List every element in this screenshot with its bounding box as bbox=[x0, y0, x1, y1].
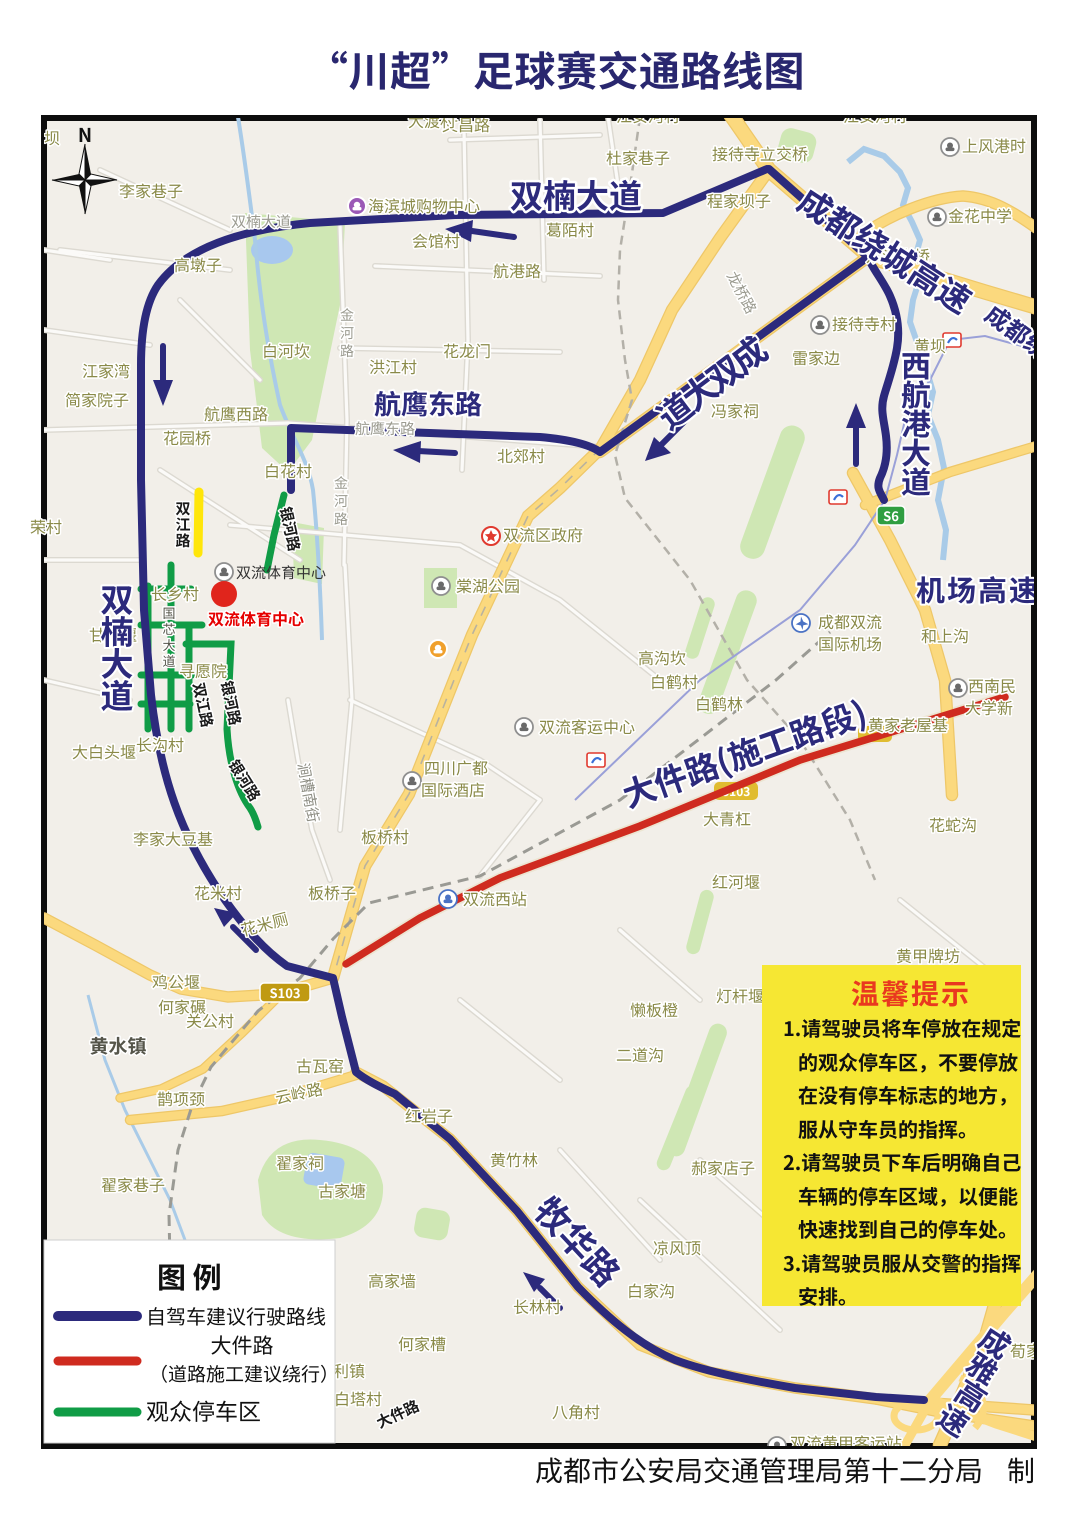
svg-text:在没有停车标志的地方，: 在没有停车标志的地方， bbox=[798, 1080, 1018, 1109]
svg-text:花蛇沟: 花蛇沟 bbox=[929, 812, 977, 836]
svg-text:观众停车区: 观众停车区 bbox=[146, 1393, 261, 1427]
svg-text:温馨提示: 温馨提示 bbox=[851, 973, 971, 1013]
svg-text:白家沟: 白家沟 bbox=[627, 1278, 675, 1302]
svg-text:洪江村: 洪江村 bbox=[369, 354, 417, 378]
svg-text:黄甲牌坊: 黄甲牌坊 bbox=[896, 943, 960, 967]
svg-text:航港路: 航港路 bbox=[493, 258, 541, 282]
svg-text:关公村: 关公村 bbox=[186, 1008, 234, 1032]
svg-text:航鹰东路: 航鹰东路 bbox=[374, 383, 482, 422]
svg-text:（道路施工建议绕行）: （道路施工建议绕行） bbox=[149, 1360, 339, 1387]
svg-text:双流客运中心: 双流客运中心 bbox=[539, 714, 635, 738]
svg-text:“川超”足球赛交通路线图: “川超”足球赛交通路线图 bbox=[307, 38, 805, 98]
svg-text:路: 路 bbox=[340, 341, 354, 361]
svg-text:简家院子: 简家院子 bbox=[65, 387, 129, 411]
svg-text:古家塘: 古家塘 bbox=[318, 1178, 366, 1202]
svg-text:道: 道 bbox=[901, 458, 931, 502]
svg-text:大白头堰: 大白头堰 bbox=[72, 739, 136, 763]
svg-text:寻愿院: 寻愿院 bbox=[179, 658, 227, 682]
svg-text:快速找到自己的停车处。: 快速找到自己的停车处。 bbox=[798, 1214, 1018, 1243]
svg-text:路: 路 bbox=[334, 509, 348, 529]
svg-text:何家槽: 何家槽 bbox=[398, 1331, 446, 1355]
svg-text:大学新: 大学新 bbox=[965, 695, 1013, 719]
svg-text:国际酒店: 国际酒店 bbox=[421, 777, 485, 801]
svg-text:白河坎: 白河坎 bbox=[262, 338, 310, 362]
svg-text:金: 金 bbox=[340, 305, 354, 325]
svg-text:大件路: 大件路 bbox=[211, 1330, 274, 1360]
svg-text:接待寺村: 接待寺村 bbox=[832, 311, 896, 335]
svg-text:双流体育中心: 双流体育中心 bbox=[208, 606, 304, 630]
svg-text:古瓦窑: 古瓦窑 bbox=[296, 1053, 344, 1077]
svg-text:灯杆堰: 灯杆堰 bbox=[716, 983, 764, 1007]
svg-text:雷家边: 雷家边 bbox=[792, 345, 840, 369]
svg-text:荣村: 荣村 bbox=[30, 514, 62, 538]
svg-text:高家墙: 高家墙 bbox=[368, 1268, 416, 1292]
svg-text:懒板橙: 懒板橙 bbox=[630, 997, 678, 1021]
svg-text:双楠大道: 双楠大道 bbox=[231, 211, 291, 232]
svg-text:航鹰西路: 航鹰西路 bbox=[204, 401, 268, 425]
svg-text:花龙门: 花龙门 bbox=[443, 338, 491, 362]
svg-text:制: 制 bbox=[1007, 1450, 1035, 1490]
svg-text:长乡村: 长乡村 bbox=[151, 581, 199, 605]
svg-text:二道沟: 二道沟 bbox=[616, 1042, 664, 1066]
svg-text:郝家店子: 郝家店子 bbox=[691, 1155, 755, 1179]
svg-text:白鹤林: 白鹤林 bbox=[695, 691, 743, 715]
svg-text:1.请驾驶员将车停放在规定: 1.请驾驶员将车停放在规定 bbox=[783, 1013, 1021, 1042]
svg-text:国际机场: 国际机场 bbox=[818, 631, 882, 655]
svg-text:双流体育中心: 双流体育中心 bbox=[236, 562, 326, 583]
svg-text:河: 河 bbox=[340, 323, 354, 343]
svg-text:金花中学: 金花中学 bbox=[948, 203, 1012, 227]
svg-text:N: N bbox=[78, 121, 92, 148]
svg-text:八角村: 八角村 bbox=[552, 1399, 600, 1423]
svg-text:3.请驾驶员服从交警的指挥: 3.请驾驶员服从交警的指挥 bbox=[783, 1248, 1021, 1277]
svg-text:白塔村: 白塔村 bbox=[334, 1386, 382, 1410]
svg-text:葛陌村: 葛陌村 bbox=[546, 217, 594, 241]
svg-text:北郊村: 北郊村 bbox=[497, 443, 545, 467]
svg-text:板桥村: 板桥村 bbox=[361, 824, 409, 848]
svg-text:长沟村: 长沟村 bbox=[136, 732, 184, 756]
svg-text:黄竹林: 黄竹林 bbox=[490, 1147, 538, 1171]
svg-text:棠湖公园: 棠湖公园 bbox=[456, 573, 520, 597]
svg-text:接待寺立交桥: 接待寺立交桥 bbox=[712, 141, 808, 165]
svg-text:双楠大道: 双楠大道 bbox=[510, 170, 642, 218]
svg-text:路: 路 bbox=[175, 530, 190, 551]
svg-text:安排。: 安排。 bbox=[798, 1281, 858, 1310]
svg-text:杜家巷子: 杜家巷子 bbox=[606, 145, 670, 169]
svg-text:自驾车建议行驶路线: 自驾车建议行驶路线 bbox=[146, 1301, 326, 1330]
svg-text:双流区政府: 双流区政府 bbox=[503, 522, 583, 546]
svg-text:的观众停车区，不要停放: 的观众停车区，不要停放 bbox=[798, 1047, 1018, 1076]
svg-text:道: 道 bbox=[101, 670, 134, 718]
svg-text:河: 河 bbox=[334, 491, 348, 511]
svg-text:花米村: 花米村 bbox=[194, 880, 242, 904]
svg-text:西南民: 西南民 bbox=[968, 673, 1016, 697]
svg-text:2.请驾驶员下车后明确自己: 2.请驾驶员下车后明确自己 bbox=[783, 1147, 1021, 1176]
svg-text:上风港时: 上风港时 bbox=[962, 133, 1026, 157]
svg-text:图 例: 图 例 bbox=[157, 1255, 222, 1297]
svg-text:翟家巷子: 翟家巷子 bbox=[101, 1172, 165, 1196]
svg-text:服从守车员的指挥。: 服从守车员的指挥。 bbox=[798, 1114, 978, 1143]
svg-text:红河堰: 红河堰 bbox=[712, 869, 760, 893]
svg-text:成都双流: 成都双流 bbox=[818, 609, 882, 633]
svg-text:江家湾: 江家湾 bbox=[82, 358, 130, 382]
svg-text:会馆村: 会馆村 bbox=[412, 228, 460, 252]
svg-text:鸡公堰: 鸡公堰 bbox=[152, 969, 200, 993]
svg-text:海滨城购物中心: 海滨城购物中心 bbox=[368, 193, 480, 217]
svg-text:长林村: 长林村 bbox=[513, 1294, 561, 1318]
svg-text:道: 道 bbox=[162, 651, 175, 670]
svg-text:凉风顶: 凉风顶 bbox=[653, 1235, 701, 1259]
svg-text:四川广都: 四川广都 bbox=[424, 755, 488, 779]
svg-text:高墩子: 高墩子 bbox=[174, 252, 222, 276]
svg-text:双流西站: 双流西站 bbox=[463, 886, 527, 910]
svg-text:白花村: 白花村 bbox=[264, 458, 312, 482]
svg-text:花园桥: 花园桥 bbox=[163, 425, 211, 449]
svg-text:板桥子: 板桥子 bbox=[308, 880, 356, 904]
svg-text:S103: S103 bbox=[269, 983, 300, 1002]
svg-text:金: 金 bbox=[334, 473, 348, 493]
svg-text:车辆的停车区域，以便能: 车辆的停车区域，以便能 bbox=[798, 1181, 1018, 1210]
svg-text:鹊项颈: 鹊项颈 bbox=[157, 1086, 205, 1110]
svg-text:李家巷子: 李家巷子 bbox=[119, 178, 183, 202]
svg-text:黄家老屋基: 黄家老屋基 bbox=[868, 712, 948, 736]
svg-text:黄水镇: 黄水镇 bbox=[89, 1032, 146, 1059]
svg-text:成都市公安局交通管理局第十二分局: 成都市公安局交通管理局第十二分局 bbox=[535, 1450, 983, 1490]
svg-text:翟家祠: 翟家祠 bbox=[276, 1150, 324, 1174]
svg-text:机场高速: 机场高速 bbox=[916, 568, 1040, 610]
svg-text:大青杠: 大青杠 bbox=[703, 806, 751, 830]
svg-text:李家大豆基: 李家大豆基 bbox=[133, 826, 213, 850]
svg-text:白鹤村: 白鹤村 bbox=[650, 669, 698, 693]
svg-text:程家坝子: 程家坝子 bbox=[707, 188, 771, 212]
svg-text:高沟坎: 高沟坎 bbox=[638, 645, 686, 669]
svg-text:和上沟: 和上沟 bbox=[921, 623, 969, 647]
svg-text:S6: S6 bbox=[883, 506, 899, 525]
svg-text:红岩子: 红岩子 bbox=[405, 1103, 453, 1127]
